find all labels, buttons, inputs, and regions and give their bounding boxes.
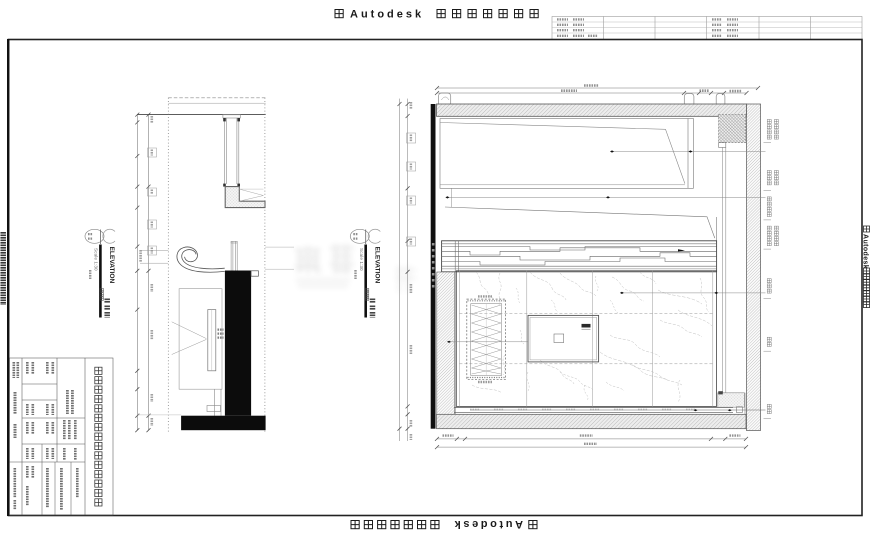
svg-text:Autodesk: Autodesk	[862, 234, 869, 269]
svg-text:Scale 1:30: Scale 1:30	[94, 248, 99, 271]
svg-text:Autodesk: Autodesk	[452, 518, 523, 530]
svg-text:Autodesk: Autodesk	[350, 8, 424, 20]
svg-text:Scale 1:30: Scale 1:30	[359, 248, 364, 271]
svg-text:ELEVATION: ELEVATION	[373, 247, 380, 284]
svg-text:ELEVATION: ELEVATION	[108, 247, 115, 284]
